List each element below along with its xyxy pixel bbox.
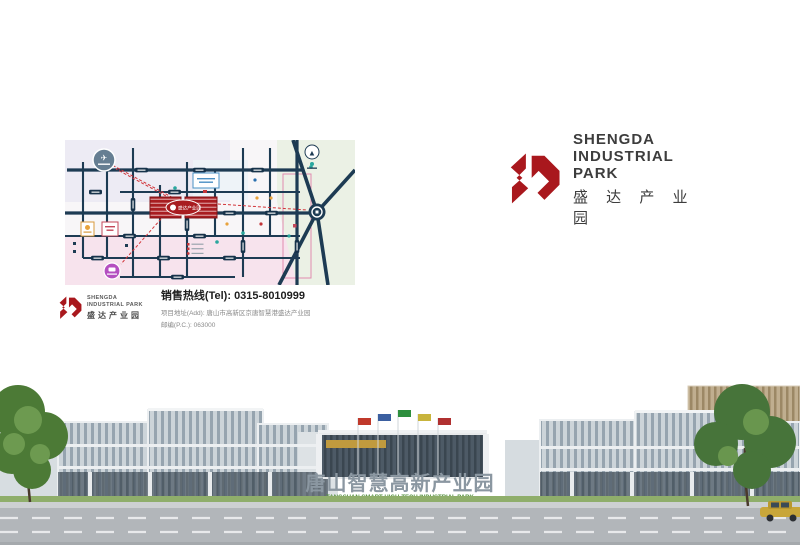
contact-info: 销售热线(Tel): 0315-8010999 项目地址(Add): 唐山市高新… — [161, 287, 311, 329]
map-legend — [187, 243, 204, 255]
gate-title-cn: 唐山智慧高新产业园 — [306, 471, 495, 495]
brand-logo: SHENGDA INDUSTRIAL PARK 盛 达 产 业 园 — [505, 148, 705, 210]
sales-hotline: 销售热线(Tel): 0315-8010999 — [161, 287, 311, 303]
map-project-label: 盛达产业园 — [178, 205, 201, 212]
sd-monogram-icon — [505, 150, 563, 208]
map-red-poi-box — [102, 222, 118, 236]
contact-logo-cn: 盛达产业园 — [87, 310, 143, 321]
hotline-number: 0315-8010999 — [234, 290, 305, 302]
map-project-block: 盛达产业园 — [150, 197, 217, 218]
ground — [0, 496, 800, 545]
map-station-marker — [104, 263, 120, 279]
flag-yellow — [418, 414, 431, 421]
map-interchange-marker — [309, 204, 326, 221]
map-canvas: 盛达产业园 — [65, 140, 355, 285]
location-map: 盛达产业园 — [65, 140, 355, 285]
flag-green — [398, 410, 411, 417]
brand-name-cn: 盛 达 产 业 园 — [573, 186, 705, 228]
brochure-page: 盛达产业园 — [0, 0, 800, 545]
gold-sign — [326, 440, 386, 448]
compass-icon: ▲ — [308, 149, 316, 158]
project-address: 项目地址(Add): 唐山市高新区京唐智慧港盛达产业园 — [161, 307, 311, 317]
airport-icon: ✈ — [101, 154, 108, 163]
panorama-canvas: 唐山智慧高新产业园 TANGSHAN SMART HIGH-TECH INDUS… — [0, 360, 800, 545]
hotline-label: 销售热线(Tel): — [161, 290, 231, 302]
flag-darkred — [438, 418, 451, 425]
flag-red — [358, 418, 371, 425]
brand-name-en-2: INDUSTRIAL PARK — [573, 148, 705, 182]
postcode: 邮编(P.C.): 063000 — [161, 319, 311, 329]
central-gate-building — [316, 430, 489, 478]
contact-logo-en-2: INDUSTRIAL PARK — [87, 302, 143, 309]
flag-blue — [378, 414, 391, 421]
map-project-logo-dot — [170, 205, 176, 211]
map-airport-marker: ✈ — [93, 149, 115, 171]
brand-name-en-1: SHENGDA — [573, 131, 705, 148]
map-orange-poi-box — [81, 222, 94, 236]
building-panorama: 唐山智慧高新产业园 TANGSHAN SMART HIGH-TECH INDUS… — [0, 360, 800, 545]
sd-monogram-small-icon — [57, 295, 83, 321]
contact-logo: SHENGDA INDUSTRIAL PARK 盛达产业园 — [57, 287, 143, 329]
train-icon — [109, 268, 116, 272]
contact-block: SHENGDA INDUSTRIAL PARK 盛达产业园 销售热线(Tel):… — [57, 287, 357, 329]
